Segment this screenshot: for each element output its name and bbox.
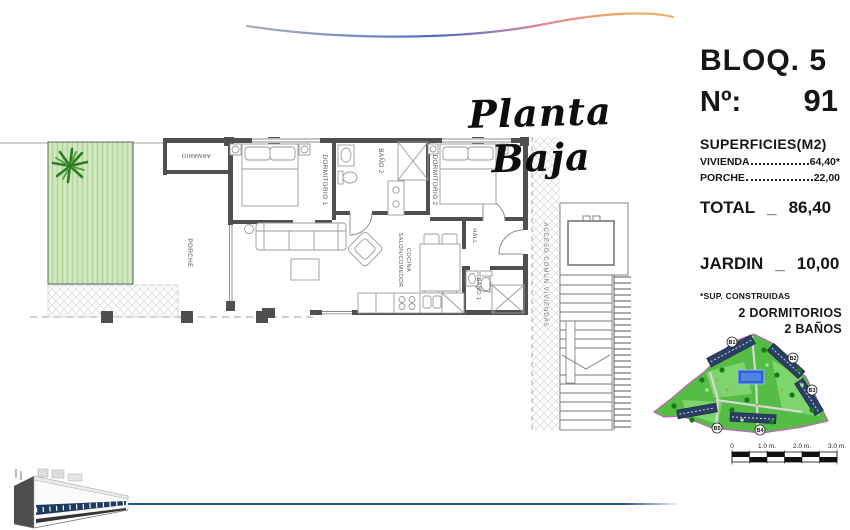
scale-tick-0: 0	[730, 443, 734, 450]
building-marker-b2: B2	[788, 353, 798, 363]
garden-area	[48, 142, 133, 284]
building-label-b1: B1	[728, 340, 735, 346]
vivienda-label: VIVIENDA	[700, 156, 750, 168]
jardin-label: JARDIN	[700, 254, 763, 274]
bathroom1-fixtures	[466, 271, 524, 313]
room-label-salon: SALON/COMEDOR	[397, 233, 403, 288]
room-label-dormitorio2: DORMITORIO 2	[431, 155, 438, 206]
feature-bedrooms: 2 DORMITORIOS	[714, 305, 842, 321]
unit-label: Nº:	[700, 86, 741, 119]
scale-tick-1: 1.0 m.	[758, 443, 776, 450]
total-value: 86,40	[789, 198, 832, 218]
total-label: TOTAL	[700, 198, 755, 218]
jardin-row: JARDIN _ 10,00	[700, 254, 848, 274]
pool	[738, 370, 764, 384]
porche-value: 22,00	[814, 172, 840, 184]
brochure-page: PORCHE ARMARIO DORMITORIO 1 BAÑO 2 DORMI…	[0, 0, 850, 530]
porche-label: PORCHE	[700, 172, 745, 184]
room-label-bano1: BAÑO 1	[475, 278, 482, 301]
scale-tick-2: 2.0 m.	[793, 443, 811, 450]
footnote: *SUP. CONSTRUIDAS	[700, 291, 848, 301]
unit-number: 91	[804, 83, 838, 119]
dining-set	[420, 234, 460, 302]
surface-row-porche: PORCHE 22,00	[700, 171, 840, 184]
room-label-dormitorio1: DORMITORIO 1	[321, 155, 328, 206]
coffee-table	[291, 259, 319, 280]
stairs-elevator	[560, 203, 631, 430]
jardin-separator: _	[775, 254, 784, 274]
building-marker-b5: B5	[712, 423, 722, 433]
room-label-hall: HALL	[471, 228, 477, 244]
scale-labels: 0 1.0 m. 2.0 m. 3.0 m.	[730, 443, 846, 450]
surface-row-vivienda: VIVIENDA 64,40*	[700, 155, 840, 168]
building-marker-b1: B1	[727, 337, 737, 347]
block-title: BLOQ. 5	[700, 46, 848, 77]
kitchen-counter	[358, 293, 464, 313]
building-marker-b4: B4	[755, 425, 765, 435]
elevator-car	[568, 221, 614, 265]
swoosh-curve	[247, 13, 673, 36]
total-separator: _	[767, 198, 776, 218]
room-label-cocina: COCINA	[405, 248, 411, 272]
jardin-value: 10,00	[797, 254, 840, 274]
sofa	[245, 223, 347, 250]
dotted-leader	[746, 171, 813, 181]
building-marker-b3: B3	[807, 385, 817, 395]
room-label-armario: ARMARIO	[181, 152, 210, 158]
building-label-b2: B2	[789, 356, 796, 362]
scale-tick-3: 3.0 m.	[828, 443, 846, 450]
unit-row: Nº: 91	[700, 83, 848, 119]
building-side-wall	[14, 476, 34, 528]
dotted-leader	[751, 155, 809, 165]
info-panel: BLOQ. 5 Nº: 91 SUPERFICIES(M2) VIVIENDA …	[700, 46, 848, 337]
room-label-porche: PORCHE	[186, 238, 193, 267]
vivienda-value: 64,40*	[810, 156, 840, 168]
total-row: TOTAL _ 86,40	[700, 198, 848, 218]
armchair	[347, 231, 384, 268]
room-label-acceso: ACCESO COMUN VIVIENDAS	[542, 222, 548, 327]
building-label-b4: B4	[756, 428, 764, 434]
site-plan-map: B1 B2 B3 B4 B5	[652, 320, 850, 442]
scale-bar: 0 1.0 m. 2.0 m. 3.0 m.	[720, 438, 850, 472]
page-title: Planta Baja	[419, 87, 660, 145]
stair-handrail	[566, 321, 575, 383]
ramp-hatch	[614, 275, 631, 430]
footer-accent-line	[112, 503, 682, 505]
building-label-b3: B3	[808, 388, 815, 394]
building-label-b5: B5	[713, 426, 720, 432]
bed-dormitorio1	[230, 144, 310, 206]
surfaces-heading: SUPERFICIES(M2)	[700, 136, 848, 152]
scale-segments	[732, 450, 837, 465]
developer-logo-building	[0, 456, 140, 530]
brand-swoosh-icon	[235, 0, 685, 50]
room-label-bano2: BAÑO 2	[377, 148, 386, 174]
